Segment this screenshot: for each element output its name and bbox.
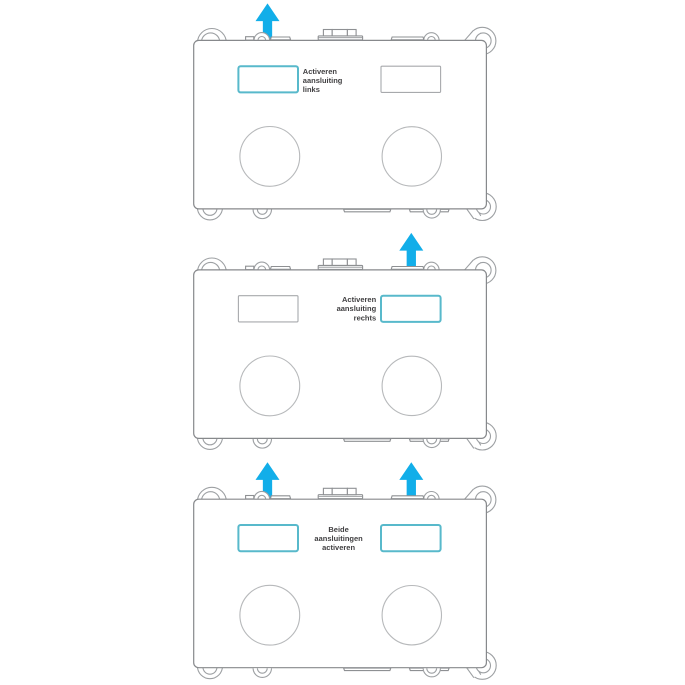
svg-text:aansluiting: aansluiting bbox=[337, 304, 377, 313]
svg-text:links: links bbox=[303, 85, 320, 94]
svg-text:aansluitingen: aansluitingen bbox=[314, 534, 363, 543]
svg-text:Activeren: Activeren bbox=[342, 295, 377, 304]
svg-text:Beide: Beide bbox=[328, 525, 348, 534]
svg-text:Activeren: Activeren bbox=[303, 67, 338, 76]
svg-text:activeren: activeren bbox=[322, 543, 355, 552]
svg-text:rechts: rechts bbox=[354, 313, 377, 322]
svg-text:aansluiting: aansluiting bbox=[303, 76, 343, 85]
